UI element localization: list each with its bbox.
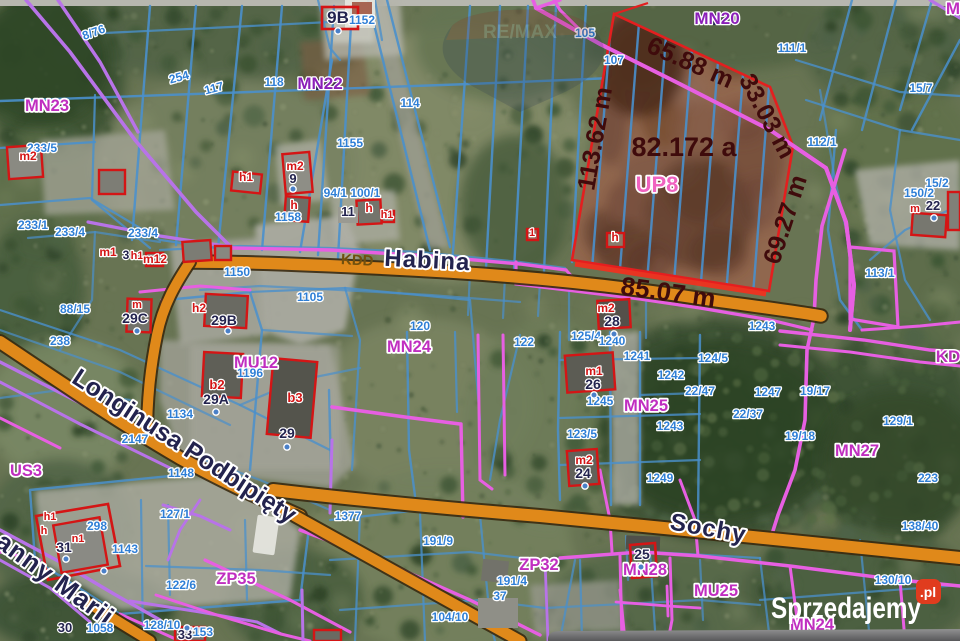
svg-text:104/10: 104/10 bbox=[432, 610, 469, 624]
svg-text:h2: h2 bbox=[192, 301, 206, 315]
svg-text:b2: b2 bbox=[209, 377, 224, 392]
svg-text:11: 11 bbox=[341, 204, 355, 219]
svg-text:123/5: 123/5 bbox=[567, 427, 597, 441]
svg-text:M: M bbox=[946, 0, 960, 18]
svg-text:1: 1 bbox=[529, 227, 535, 239]
svg-text:1242: 1242 bbox=[658, 368, 685, 382]
svg-text:120: 120 bbox=[410, 319, 430, 333]
svg-text:ZP32: ZP32 bbox=[519, 556, 558, 574]
svg-text:.pl: .pl bbox=[920, 584, 936, 600]
svg-text:112/1: 112/1 bbox=[807, 135, 837, 149]
svg-text:1134: 1134 bbox=[167, 407, 193, 421]
svg-text:233/4: 233/4 bbox=[128, 226, 158, 240]
svg-text:130/10: 130/10 bbox=[875, 573, 912, 587]
svg-text:88/15: 88/15 bbox=[60, 302, 90, 316]
svg-text:233/4: 233/4 bbox=[55, 225, 85, 239]
svg-text:233/1: 233/1 bbox=[18, 218, 48, 232]
svg-text:n1: n1 bbox=[72, 533, 85, 545]
svg-text:30: 30 bbox=[58, 620, 72, 635]
svg-text:h: h bbox=[365, 201, 372, 215]
svg-text:107: 107 bbox=[604, 53, 624, 67]
svg-text:129/1: 129/1 bbox=[883, 414, 913, 428]
svg-text:125/4: 125/4 bbox=[571, 329, 601, 343]
svg-text:1058: 1058 bbox=[87, 621, 114, 635]
svg-text:128/10: 128/10 bbox=[144, 618, 181, 632]
svg-text:223: 223 bbox=[918, 471, 938, 485]
svg-text:298: 298 bbox=[87, 519, 107, 533]
svg-text:1143: 1143 bbox=[112, 542, 138, 556]
svg-text:122: 122 bbox=[514, 335, 534, 349]
svg-text:124/5: 124/5 bbox=[698, 351, 728, 365]
svg-text:1241: 1241 bbox=[624, 349, 651, 363]
svg-text:MN24: MN24 bbox=[387, 338, 432, 356]
svg-text:m: m bbox=[910, 203, 920, 215]
svg-text:37: 37 bbox=[493, 589, 507, 603]
svg-text:22/37: 22/37 bbox=[733, 407, 763, 421]
svg-text:h: h bbox=[41, 525, 48, 537]
svg-text:1150: 1150 bbox=[224, 265, 250, 279]
svg-text:1155: 1155 bbox=[337, 136, 363, 150]
svg-text:h1: h1 bbox=[381, 209, 394, 221]
svg-text:15/7: 15/7 bbox=[909, 81, 933, 95]
svg-text:29C: 29C bbox=[122, 310, 148, 326]
svg-text:1152: 1152 bbox=[349, 13, 375, 27]
svg-text:m2: m2 bbox=[19, 149, 37, 163]
svg-text:9B: 9B bbox=[327, 8, 349, 27]
svg-text:29: 29 bbox=[279, 425, 295, 441]
svg-text:Habina: Habina bbox=[384, 245, 471, 276]
svg-text:h: h bbox=[611, 230, 618, 244]
svg-text:ZP35: ZP35 bbox=[216, 570, 255, 588]
svg-text:26: 26 bbox=[585, 376, 601, 392]
svg-text:2147: 2147 bbox=[122, 432, 149, 446]
svg-text:238: 238 bbox=[50, 334, 70, 348]
svg-text:MN23: MN23 bbox=[25, 97, 69, 115]
svg-text:1148: 1148 bbox=[168, 466, 194, 480]
svg-text:127/1: 127/1 bbox=[160, 507, 190, 521]
svg-text:122/6: 122/6 bbox=[166, 578, 196, 592]
svg-text:RE/MAX: RE/MAX bbox=[483, 22, 557, 43]
svg-text:19/17: 19/17 bbox=[800, 384, 830, 398]
svg-text:138/40: 138/40 bbox=[902, 519, 939, 533]
svg-text:1377: 1377 bbox=[335, 509, 362, 523]
svg-text:9: 9 bbox=[289, 171, 296, 186]
svg-text:h1: h1 bbox=[44, 511, 57, 523]
svg-text:Sprzedajemy: Sprzedajemy bbox=[771, 592, 921, 625]
svg-text:191/4: 191/4 bbox=[497, 574, 527, 588]
svg-text:1196: 1196 bbox=[237, 366, 263, 380]
svg-text:82.172 a: 82.172 a bbox=[631, 132, 737, 162]
svg-text:3: 3 bbox=[123, 248, 130, 262]
svg-text:MU25: MU25 bbox=[694, 582, 738, 600]
svg-text:29A: 29A bbox=[203, 391, 229, 407]
svg-text:h1: h1 bbox=[131, 250, 144, 262]
svg-text:31: 31 bbox=[56, 539, 72, 555]
svg-text:US3: US3 bbox=[10, 462, 42, 480]
svg-text:1158: 1158 bbox=[275, 210, 301, 224]
svg-text:UP8: UP8 bbox=[636, 172, 679, 197]
svg-text:22/47: 22/47 bbox=[685, 384, 715, 398]
svg-text:KDD: KDD bbox=[341, 251, 375, 270]
svg-text:25: 25 bbox=[634, 546, 650, 562]
svg-text:h1: h1 bbox=[239, 170, 253, 184]
svg-text:MN25: MN25 bbox=[624, 397, 668, 415]
svg-text:MN22: MN22 bbox=[297, 74, 342, 93]
svg-text:24: 24 bbox=[575, 465, 591, 481]
svg-text:118: 118 bbox=[264, 75, 284, 89]
svg-text:19/18: 19/18 bbox=[785, 429, 815, 443]
svg-text:1243: 1243 bbox=[657, 419, 684, 433]
svg-text:1249: 1249 bbox=[647, 471, 674, 485]
svg-text:m12: m12 bbox=[143, 252, 167, 266]
svg-text:b3: b3 bbox=[287, 390, 302, 405]
svg-text:1247: 1247 bbox=[755, 385, 782, 399]
svg-text:113/1: 113/1 bbox=[865, 266, 895, 280]
svg-text:114: 114 bbox=[400, 96, 420, 110]
svg-text:111/1: 111/1 bbox=[778, 41, 807, 55]
svg-text:m1: m1 bbox=[99, 245, 117, 259]
svg-text:MN27: MN27 bbox=[835, 442, 879, 460]
svg-text:29B: 29B bbox=[211, 312, 237, 328]
svg-text:191/9: 191/9 bbox=[423, 534, 453, 548]
svg-text:h: h bbox=[290, 198, 297, 212]
svg-text:MN20: MN20 bbox=[694, 9, 739, 28]
svg-text:MN28: MN28 bbox=[623, 561, 667, 579]
svg-text:1105: 1105 bbox=[297, 290, 323, 304]
svg-text:22: 22 bbox=[926, 198, 940, 213]
svg-text:KD: KD bbox=[936, 347, 960, 366]
svg-text:1243: 1243 bbox=[749, 319, 776, 333]
svg-text:28: 28 bbox=[604, 313, 620, 329]
svg-text:94/1 100/1: 94/1 100/1 bbox=[324, 186, 381, 200]
